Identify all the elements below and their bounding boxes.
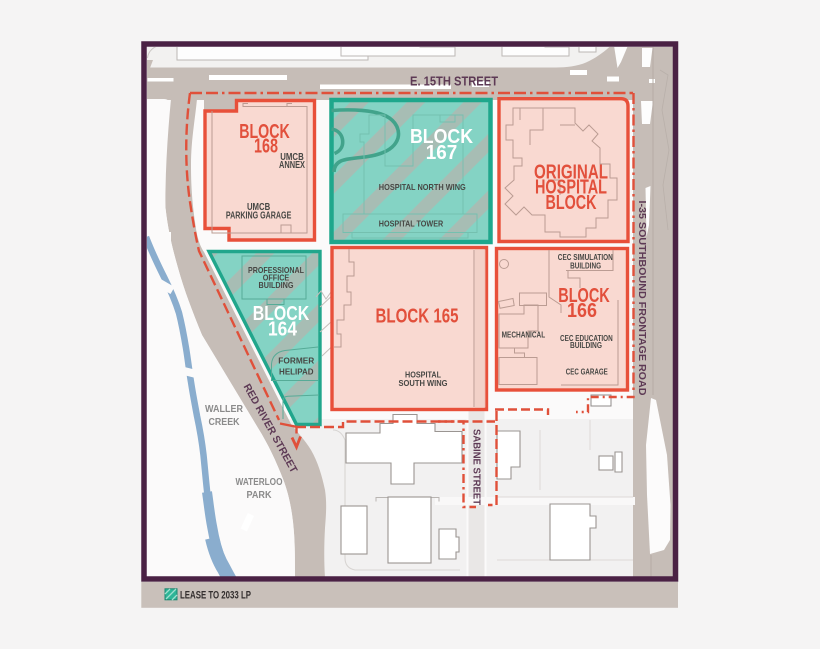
svg-text:E. 15TH STREET: E. 15TH STREET (410, 74, 498, 89)
svg-text:CEC GARAGE: CEC GARAGE (566, 367, 608, 377)
svg-text:PARK: PARK (247, 490, 273, 501)
svg-text:BLOCK 165: BLOCK 165 (376, 306, 459, 328)
svg-text:WALLER: WALLER (205, 404, 244, 415)
svg-text:CREEK: CREEK (209, 417, 241, 428)
svg-text:MECHANICAL: MECHANICAL (502, 330, 546, 340)
svg-text:166: 166 (567, 300, 597, 322)
svg-text:SABINE STREET: SABINE STREET (471, 429, 483, 506)
svg-text:164: 164 (268, 318, 298, 340)
svg-text:168: 168 (254, 136, 278, 158)
svg-text:WATERLOO: WATERLOO (236, 477, 283, 488)
svg-text:LEASE TO 2033 LP: LEASE TO 2033 LP (180, 590, 251, 602)
svg-text:I-35 SOUTHBOUND FRONTAGE ROAD: I-35 SOUTHBOUND FRONTAGE ROAD (636, 201, 648, 396)
svg-text:BUILDING: BUILDING (570, 260, 601, 270)
svg-text:167: 167 (426, 142, 458, 164)
svg-text:ANNEX: ANNEX (279, 160, 305, 171)
svg-text:SOUTH WING: SOUTH WING (399, 378, 448, 388)
svg-text:PARKING GARAGE: PARKING GARAGE (226, 211, 292, 222)
svg-text:BUILDING: BUILDING (570, 340, 602, 350)
svg-text:FORMER: FORMER (278, 356, 314, 366)
svg-text:HOSPITAL TOWER: HOSPITAL TOWER (379, 218, 443, 228)
svg-text:BUILDING: BUILDING (259, 280, 294, 290)
svg-text:BLOCK: BLOCK (546, 192, 597, 214)
svg-text:HOSPITAL NORTH WING: HOSPITAL NORTH WING (379, 182, 466, 192)
svg-text:HELIPAD: HELIPAD (279, 367, 314, 377)
